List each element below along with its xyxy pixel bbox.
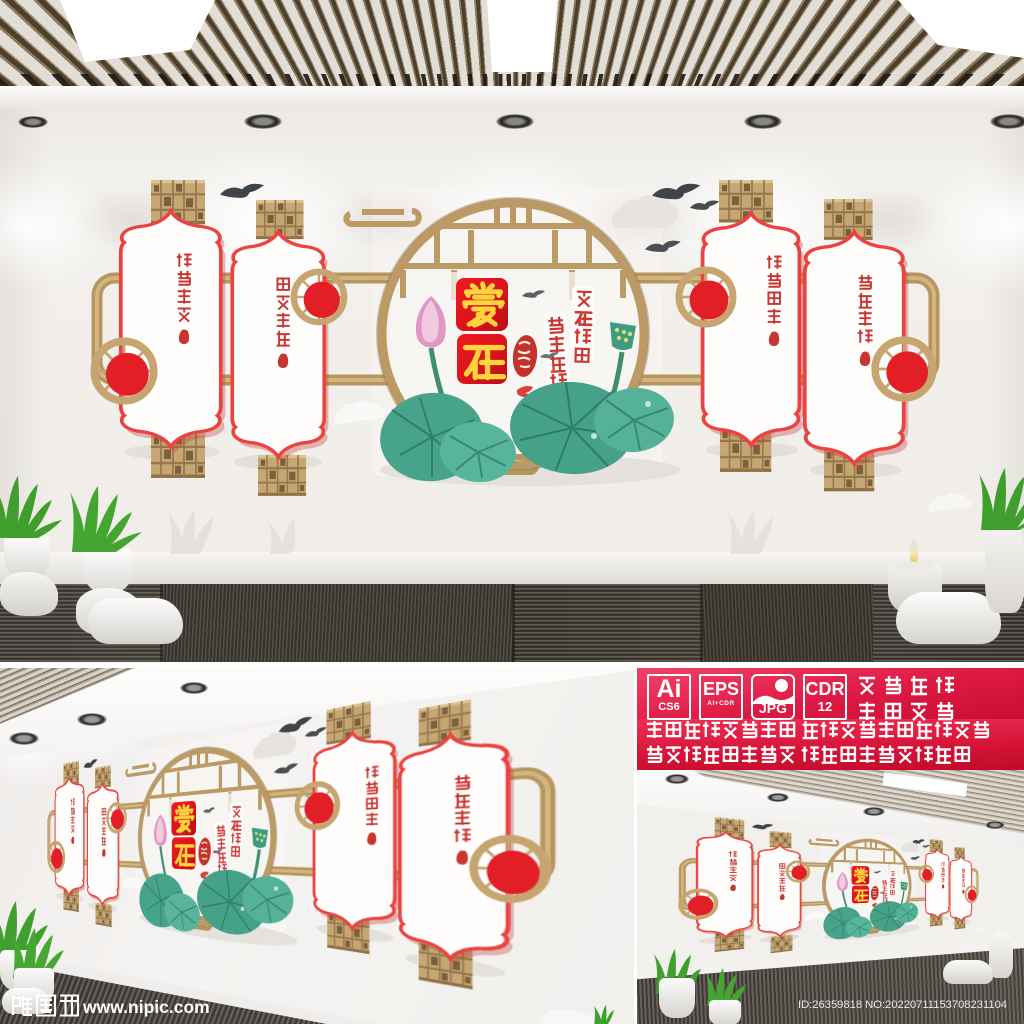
svg-text:www.nipic.com: www.nipic.com <box>82 997 210 1017</box>
